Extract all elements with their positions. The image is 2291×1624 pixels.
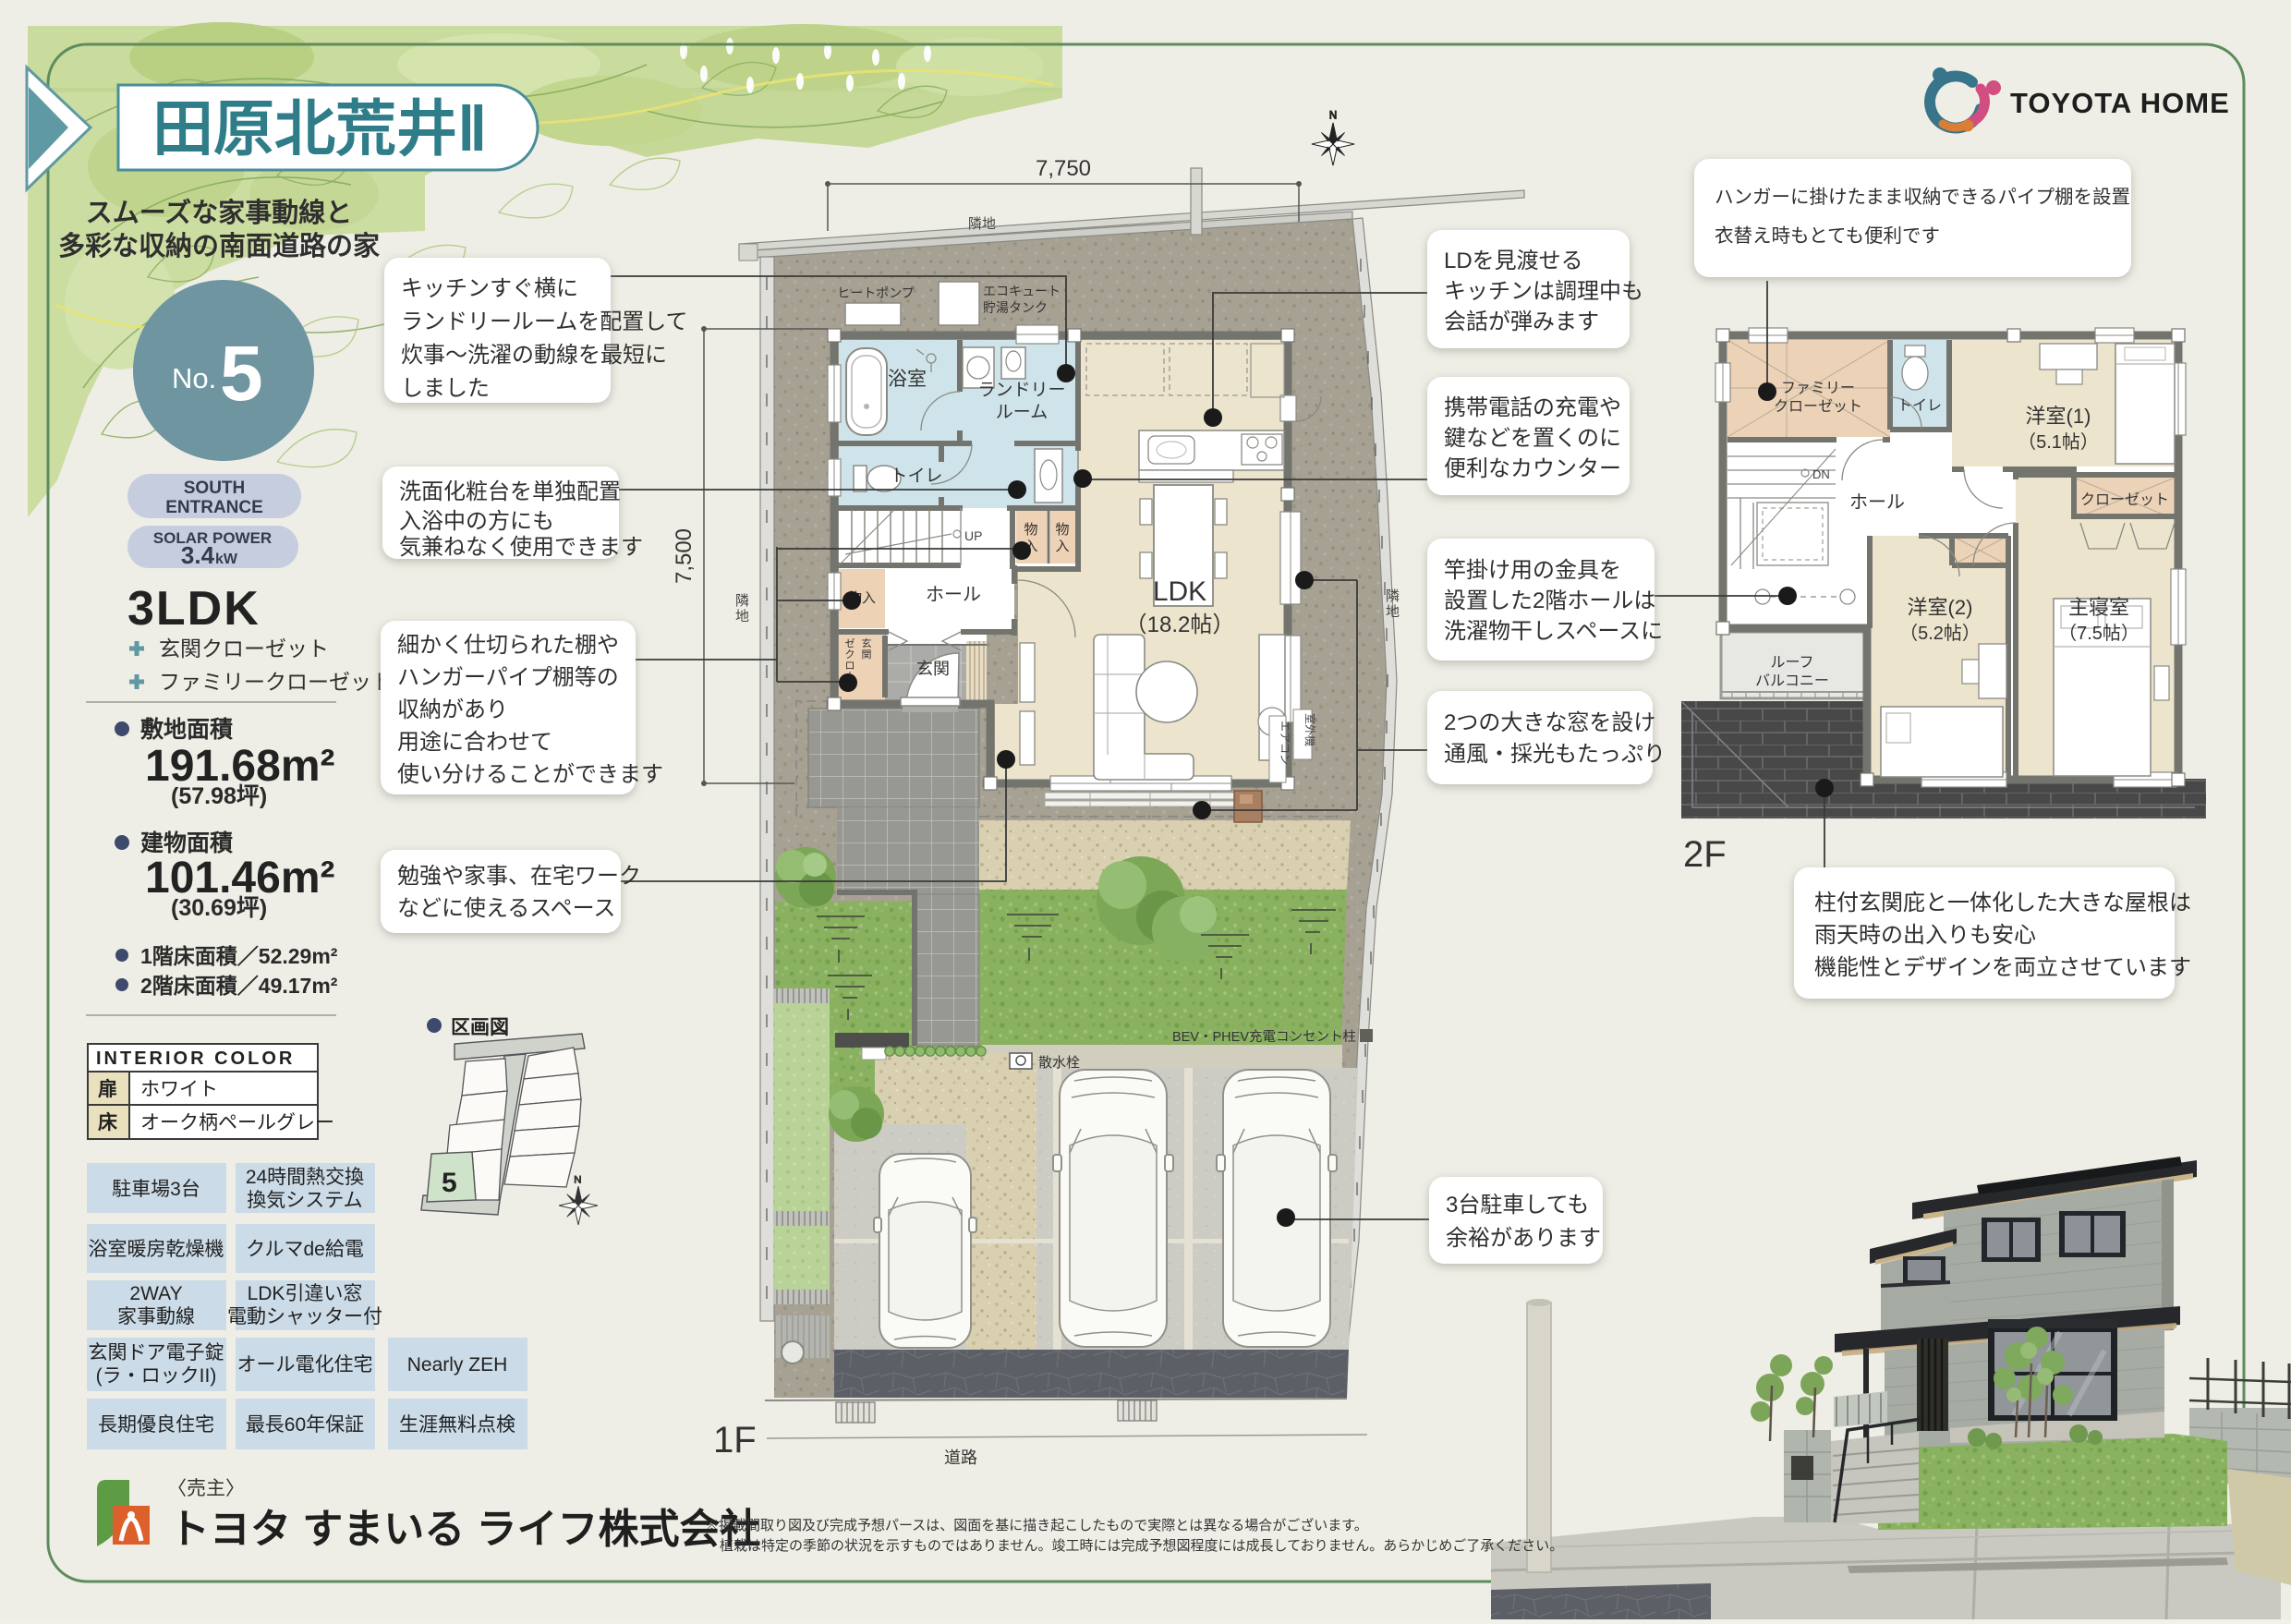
- svg-text:トイレ: トイレ: [890, 467, 942, 486]
- svg-text:長期優良住宅: 長期優良住宅: [98, 1414, 214, 1436]
- svg-text:駐車場3台: 駐車場3台: [112, 1179, 200, 1200]
- svg-text:収納があり: 収納があり: [397, 697, 508, 722]
- svg-text:玄関: 玄関: [916, 660, 950, 678]
- svg-text:勉強や家事、在宅ワーク: 勉強や家事、在宅ワーク: [397, 864, 641, 889]
- svg-text:地: 地: [1386, 604, 1400, 620]
- svg-text:家事動線: 家事動線: [117, 1306, 195, 1327]
- svg-text:玄関クローゼット: 玄関クローゼット: [159, 636, 329, 661]
- svg-text:（5.1帖）: （5.1帖）: [2018, 431, 2099, 453]
- svg-text:用途に合わせて: 用途に合わせて: [397, 730, 552, 755]
- svg-text:炊事～洗濯の動線を最短に: 炊事～洗濯の動線を最短に: [401, 343, 667, 368]
- svg-text:建物面積: 建物面積: [140, 830, 233, 856]
- svg-text:床: 床: [98, 1111, 117, 1133]
- svg-text:BEV・PHEV充電コンセント柱: BEV・PHEV充電コンセント柱: [1172, 1029, 1356, 1045]
- svg-text:ルーム: ルーム: [996, 403, 1048, 422]
- svg-text:5: 5: [442, 1168, 457, 1198]
- svg-text:多彩な収納の南面道路の家: 多彩な収納の南面道路の家: [58, 230, 380, 261]
- svg-text:衣替え時もとても便利です: 衣替え時もとても便利です: [1715, 225, 1940, 247]
- svg-text:最長60年保証: 最長60年保証: [246, 1414, 364, 1436]
- svg-text:LDK引違い窓: LDK引違い窓: [248, 1283, 363, 1304]
- svg-text:5: 5: [220, 330, 263, 417]
- svg-text:ホール: ホール: [1849, 492, 1905, 513]
- svg-text:ハンガーに掛けたまま収納できるパイプ棚を設置: ハンガーに掛けたまま収納できるパイプ棚を設置: [1715, 187, 2130, 208]
- svg-text:クルマde給電: クルマde給電: [246, 1239, 364, 1260]
- svg-text:しました: しました: [401, 376, 490, 401]
- svg-text:(30.69坪): (30.69坪): [171, 895, 267, 921]
- svg-text:（18.2帖）: （18.2帖）: [1125, 612, 1235, 637]
- svg-text:N: N: [1329, 111, 1337, 122]
- svg-text:キッチンは調理中も: キッチンは調理中も: [1444, 279, 1643, 304]
- svg-text:雨天時の出入りも安心: 雨天時の出入りも安心: [1814, 923, 2036, 948]
- svg-text:ホワイト: ホワイト: [140, 1079, 218, 1100]
- svg-text:2WAY: 2WAY: [129, 1283, 182, 1304]
- svg-text:浴室: 浴室: [888, 369, 927, 390]
- svg-text:UP: UP: [964, 528, 982, 543]
- svg-text:植栽は特定の季節の状況を示すものではありません。竣工時には完: 植栽は特定の季節の状況を示すものではありません。竣工時には完成予想図程度には成長…: [720, 1537, 1563, 1554]
- svg-text:オーク柄ペールグレー: オーク柄ペールグレー: [140, 1112, 334, 1133]
- svg-text:会話が弾みます: 会話が弾みます: [1444, 309, 1599, 334]
- svg-text:N: N: [574, 1174, 581, 1185]
- svg-text:エコキュート: エコキュート: [983, 284, 1061, 298]
- svg-text:24時間熱交換: 24時間熱交換: [246, 1167, 364, 1188]
- svg-text:入浴中の方にも: 入浴中の方にも: [399, 509, 554, 534]
- svg-text:通風・採光もたっぷり: 通風・採光もたっぷり: [1444, 742, 1666, 767]
- svg-text:トイレ: トイレ: [1897, 398, 1942, 414]
- svg-text:隣: 隣: [735, 593, 749, 609]
- svg-text:余裕があります: 余裕があります: [1446, 1226, 1601, 1251]
- svg-text:細かく仕切られた棚や: 細かく仕切られた棚や: [397, 633, 619, 658]
- svg-text:玄: 玄: [862, 636, 872, 649]
- svg-text:ファミリークローゼット: ファミリークローゼット: [159, 670, 393, 694]
- svg-text:物: 物: [1055, 522, 1069, 538]
- svg-text:田原北荒井Ⅱ: 田原北荒井Ⅱ: [152, 94, 487, 163]
- svg-text:ルーフ: ルーフ: [1770, 655, 1813, 671]
- svg-text:設置した2階ホールは: 設置した2階ホールは: [1444, 588, 1655, 613]
- svg-text:（5.2帖）: （5.2帖）: [1899, 623, 1981, 644]
- svg-text:物: 物: [1024, 522, 1037, 538]
- svg-text:柱付玄関庇と一体化した大きな屋根は: 柱付玄関庇と一体化した大きな屋根は: [1814, 891, 2191, 915]
- svg-text:地: 地: [735, 609, 749, 624]
- svg-text:ファミリー: ファミリー: [1781, 381, 1855, 396]
- svg-text:機能性とデザインを両立させています: 機能性とデザインを両立させています: [1814, 955, 2191, 980]
- svg-text:TOYOTA HOME: TOYOTA HOME: [2010, 87, 2230, 119]
- svg-text:敷地面積: 敷地面積: [140, 716, 233, 743]
- svg-text:ハンガーパイプ棚等の: ハンガーパイプ棚等の: [397, 665, 619, 690]
- svg-text:ランドリー: ランドリー: [977, 381, 1065, 400]
- svg-text:洗面化粧台を単独配置: 洗面化粧台を単独配置: [399, 479, 621, 504]
- svg-text:SOUTH: SOUTH: [184, 479, 246, 498]
- svg-text:※掲載間取り図及び完成予想パースは、図面を基に描き起こしたも: ※掲載間取り図及び完成予想パースは、図面を基に描き起こしたもので実際とは異なる場…: [705, 1517, 1368, 1533]
- svg-text:クローゼット: クローゼット: [1774, 398, 1862, 415]
- svg-text:散水栓: 散水栓: [1038, 1055, 1080, 1071]
- svg-text:区画図: 区画図: [451, 1017, 509, 1038]
- svg-text:(57.98坪): (57.98坪): [171, 783, 267, 809]
- svg-text:2F: 2F: [1683, 834, 1727, 875]
- svg-text:生涯無料点検: 生涯無料点検: [399, 1414, 515, 1436]
- svg-text:kW: kW: [215, 551, 238, 567]
- svg-text:洋室(1): 洋室(1): [2026, 405, 2091, 428]
- svg-text:ゼ: ゼ: [845, 637, 855, 649]
- svg-text:貯湯タンク: 貯湯タンク: [983, 300, 1048, 315]
- svg-text:2階床面積／49.17m²: 2階床面積／49.17m²: [140, 974, 338, 998]
- svg-text:ロ: ロ: [845, 661, 855, 672]
- svg-text:電動シャッター付: 電動シャッター付: [227, 1306, 382, 1327]
- svg-text:7,500: 7,500: [672, 528, 697, 584]
- svg-text:オール電化住宅: オール電化住宅: [237, 1354, 373, 1376]
- svg-text:洋室(2): 洋室(2): [1908, 596, 1973, 619]
- svg-text:トヨタ すまいる ライフ株式会社: トヨタ すまいる ライフ株式会社: [169, 1507, 760, 1552]
- svg-text:入: 入: [1055, 539, 1069, 554]
- svg-text:室外機: 室外機: [1303, 713, 1317, 746]
- svg-text:3LDK: 3LDK: [127, 582, 261, 636]
- svg-text:1F: 1F: [713, 1420, 757, 1460]
- svg-text:クローゼット: クローゼット: [2080, 491, 2169, 508]
- svg-text:1階床面積／52.29m²: 1階床面積／52.29m²: [140, 944, 338, 968]
- svg-text:鍵などを置くのに: 鍵などを置くのに: [1444, 426, 1621, 451]
- svg-text:携帯電話の充電や: 携帯電話の充電や: [1444, 395, 1621, 420]
- svg-text:LDK: LDK: [1153, 576, 1206, 607]
- svg-text:ク: ク: [845, 648, 855, 661]
- svg-text:キッチンすぐ横に: キッチンすぐ横に: [401, 276, 578, 301]
- svg-text:竿掛け用の金具を: 竿掛け用の金具を: [1444, 558, 1621, 583]
- svg-text:換気システム: 換気システム: [247, 1190, 362, 1211]
- svg-text:ホール: ホール: [926, 585, 981, 605]
- svg-text:ヒートポンプ: ヒートポンプ: [837, 285, 915, 300]
- svg-text:スムーズな家事動線と: スムーズな家事動線と: [86, 197, 353, 228]
- svg-text:(ラ・ロックII): (ラ・ロックII): [96, 1365, 217, 1387]
- svg-text:道路: 道路: [944, 1448, 977, 1467]
- svg-text:洗濯物干しスペースに: 洗濯物干しスペースに: [1444, 619, 1663, 644]
- svg-text:ランドリールームを配置して: ランドリールームを配置して: [401, 309, 688, 334]
- svg-text:などに使えるスペース: などに使えるスペース: [397, 896, 615, 921]
- svg-text:ENTRANCE: ENTRANCE: [165, 498, 263, 517]
- svg-text:バルコニー: バルコニー: [1755, 673, 1829, 689]
- svg-text:隣地: 隣地: [968, 216, 996, 232]
- svg-text:関: 関: [862, 648, 872, 661]
- svg-text:LDを見渡せる: LDを見渡せる: [1444, 248, 1583, 273]
- svg-text:〈売主〉: 〈売主〉: [167, 1478, 245, 1499]
- svg-text:3台駐車しても: 3台駐車しても: [1446, 1193, 1589, 1218]
- svg-text:エアコン: エアコン: [1279, 721, 1291, 765]
- svg-text:INTERIOR COLOR: INTERIOR COLOR: [96, 1048, 295, 1069]
- svg-text:浴室暖房乾燥機: 浴室暖房乾燥機: [89, 1239, 224, 1260]
- svg-text:No.: No.: [172, 362, 216, 394]
- svg-text:3.4: 3.4: [181, 541, 215, 569]
- svg-text:主寝室: 主寝室: [2068, 596, 2129, 619]
- svg-text:Nearly ZEH: Nearly ZEH: [407, 1354, 508, 1376]
- svg-text:便利なカウンター: 便利なカウンター: [1444, 456, 1621, 481]
- svg-text:気兼ねなく使用できます: 気兼ねなく使用できます: [399, 535, 643, 560]
- svg-text:2つの大きな窓を設け: 2つの大きな窓を設け: [1444, 710, 1655, 735]
- svg-text:玄関ドア電子錠: 玄関ドア電子錠: [89, 1342, 224, 1363]
- svg-text:扉: 扉: [98, 1078, 117, 1100]
- svg-text:隣: 隣: [1386, 588, 1400, 604]
- svg-text:使い分けることができます: 使い分けることができます: [397, 762, 663, 787]
- svg-text:7,750: 7,750: [1036, 156, 1091, 181]
- svg-text:DN: DN: [1812, 467, 1830, 481]
- svg-text:（7.5帖）: （7.5帖）: [2058, 623, 2139, 644]
